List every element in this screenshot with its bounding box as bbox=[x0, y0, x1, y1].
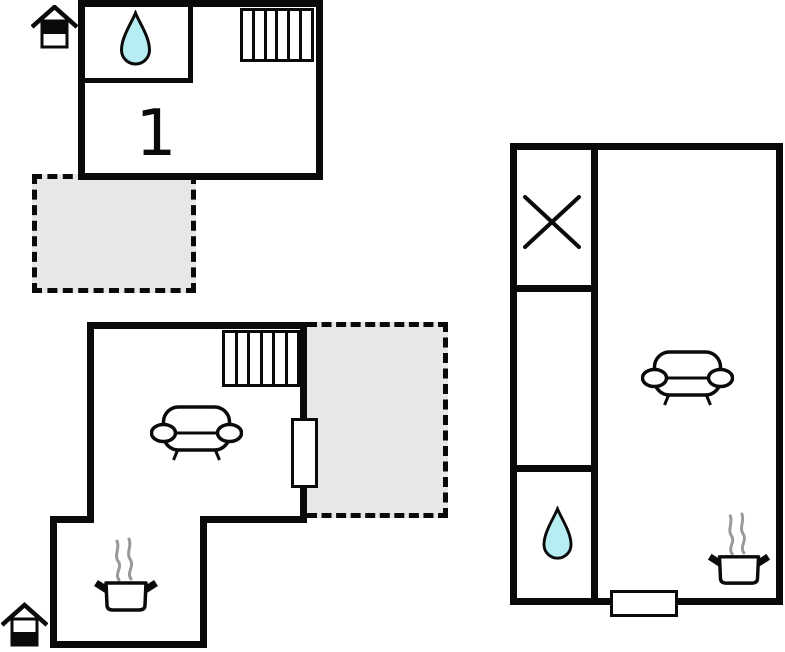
ground-floor-indicator-icon bbox=[1, 602, 48, 648]
wall bbox=[50, 641, 207, 648]
room-number: 1 bbox=[134, 102, 178, 166]
terrace-ground-floor bbox=[307, 322, 448, 518]
door-marker bbox=[291, 418, 318, 488]
floor-plan: 1 bbox=[0, 0, 785, 652]
stairs-icon bbox=[240, 8, 314, 62]
terrace-upper-floor bbox=[32, 174, 196, 293]
water-drop-icon bbox=[540, 506, 575, 562]
wall bbox=[50, 516, 57, 648]
wall bbox=[517, 285, 591, 292]
wall bbox=[87, 322, 307, 329]
stairs-icon bbox=[222, 330, 300, 387]
water-drop-icon bbox=[117, 10, 154, 68]
cross-icon bbox=[522, 194, 582, 250]
wall bbox=[591, 150, 598, 598]
sofa-icon bbox=[641, 349, 734, 407]
wall bbox=[517, 465, 591, 472]
wall bbox=[300, 322, 307, 418]
wall bbox=[200, 516, 307, 523]
sofa-icon bbox=[150, 404, 243, 462]
upper-floor-indicator-icon bbox=[31, 5, 78, 50]
wall bbox=[87, 322, 94, 523]
door-marker bbox=[610, 590, 678, 617]
pot-with-steam-icon bbox=[94, 535, 158, 615]
wall bbox=[300, 487, 307, 523]
wall bbox=[200, 523, 207, 648]
pot-with-steam-icon bbox=[706, 510, 772, 588]
